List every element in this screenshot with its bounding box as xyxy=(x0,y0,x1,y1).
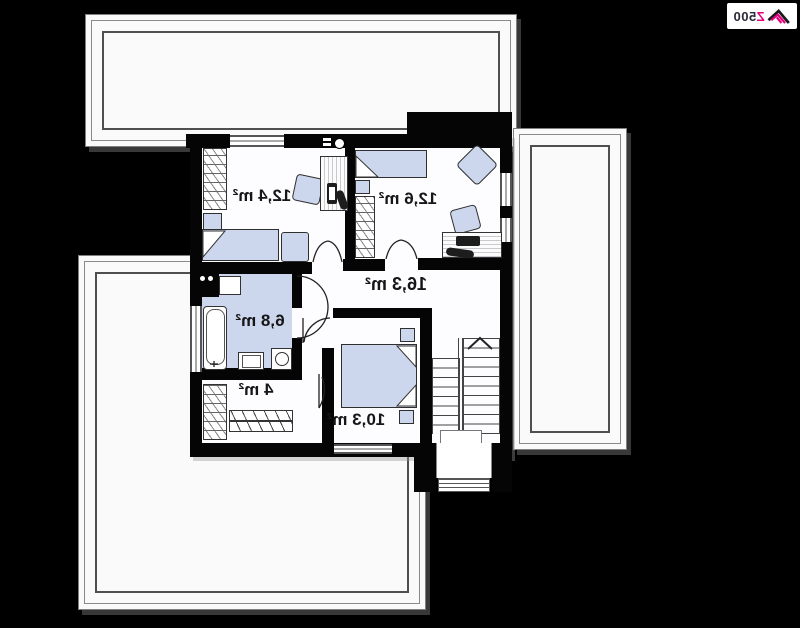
room-label-4: 4 m² xyxy=(201,380,311,400)
room-label-10-3: 10,3 m² xyxy=(301,410,411,430)
window-bottom xyxy=(334,444,392,454)
nightstand-symbol xyxy=(203,213,222,230)
shaft-dot xyxy=(200,276,205,281)
sink-basin xyxy=(242,355,261,368)
roof-plane-right xyxy=(513,128,627,450)
window-right-1 xyxy=(500,173,512,206)
shaft-dot xyxy=(208,276,213,281)
exterior-steps-symbol xyxy=(438,478,490,492)
bed-symbol xyxy=(355,150,427,178)
bed-symbol xyxy=(202,229,279,261)
nightstand-symbol xyxy=(400,328,415,342)
shelf-icon xyxy=(323,138,331,141)
room-label-16-3: 16,3 m² xyxy=(341,274,451,295)
z500-logo-number: 500 xyxy=(733,9,756,24)
floor-plan-canvas: 12,4 m² 12,6 m² 16,3 m² 6,8 m² 4 m² 10,3… xyxy=(0,0,800,628)
wall-room126-south xyxy=(418,258,500,270)
stair-flight-right xyxy=(462,338,500,434)
window-left-bath xyxy=(190,306,202,372)
stair-flight-left xyxy=(432,358,460,434)
shelf-icon xyxy=(323,143,331,146)
wall-hall-north-mid xyxy=(343,259,385,271)
room-label-6-8: 6,8 m² xyxy=(205,311,315,331)
wall-bedroom-east xyxy=(420,308,432,443)
clothes-rail-symbol xyxy=(229,410,293,432)
z500-logo-z: Z xyxy=(756,9,764,24)
stair-flank-right xyxy=(492,443,512,492)
entry-landing xyxy=(436,443,492,478)
double-bed-symbol xyxy=(341,344,417,408)
armchair-symbol xyxy=(281,232,309,262)
room-label-12-6: 12,6 m² xyxy=(353,189,463,209)
duct-shaft xyxy=(196,271,219,297)
keyboard-symbol xyxy=(456,236,480,246)
wall-bottom xyxy=(190,443,436,457)
z500-logo-text: Z500 xyxy=(733,10,765,23)
stair-flank-left xyxy=(414,443,436,492)
z500-logo-inner: Z500 xyxy=(733,7,791,26)
wall-top-mid xyxy=(284,134,407,148)
z500-logo: Z500 xyxy=(727,3,797,29)
washing-machine-symbol xyxy=(219,276,241,295)
z500-roof-icon xyxy=(767,7,791,26)
laptop-screen xyxy=(329,187,335,200)
wall-bedroom-north xyxy=(333,308,423,318)
wall-bath-east-upper xyxy=(292,274,302,308)
room-label-12-4: 12,4 m² xyxy=(207,186,317,206)
lamp-icon xyxy=(334,138,345,149)
toilet-bowl xyxy=(275,352,289,366)
stair-divider xyxy=(458,338,464,434)
wall-top-right-block xyxy=(407,112,512,148)
window-top xyxy=(230,135,284,147)
